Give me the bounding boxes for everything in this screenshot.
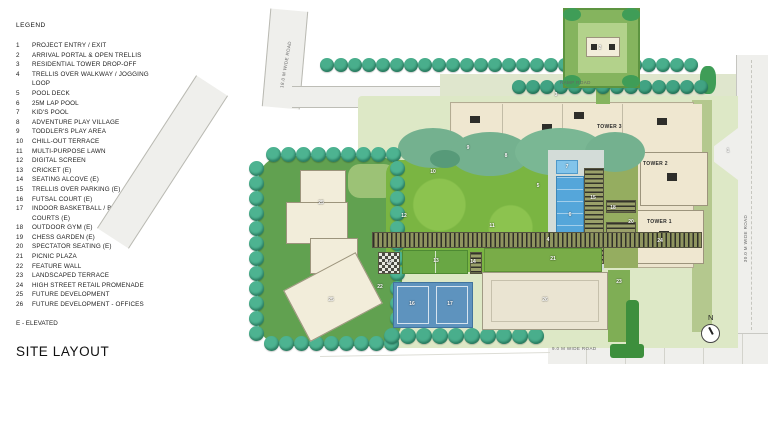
map-marker: 19	[386, 260, 392, 266]
tree-icon	[324, 336, 339, 351]
tree-icon	[249, 161, 264, 176]
map-marker: 6	[569, 212, 572, 218]
tree-icon	[249, 296, 264, 311]
tree-icon	[249, 326, 264, 341]
map-marker: 25	[328, 297, 334, 303]
map-marker: 15	[590, 195, 596, 201]
tree-icon	[249, 221, 264, 236]
tree-icon	[334, 58, 348, 72]
tree-icon	[326, 147, 341, 162]
north-label: N	[708, 313, 713, 322]
tree-icon	[369, 336, 384, 351]
tree-icon	[339, 336, 354, 351]
tower-label: TOWER 1	[647, 219, 672, 225]
tree-icon	[446, 58, 460, 72]
picnic-plaza-lawn	[484, 248, 602, 272]
tree-icon	[264, 336, 279, 351]
sports-courts	[393, 282, 473, 328]
tree-icon	[362, 58, 376, 72]
map-marker: 1	[727, 148, 730, 154]
tree-icon	[390, 176, 405, 191]
map-marker: 2	[599, 45, 602, 51]
tree-icon	[249, 311, 264, 326]
tree-icon	[526, 80, 540, 94]
tree-icon	[460, 58, 474, 72]
map-marker: 21	[550, 256, 556, 262]
map-marker: 5	[537, 183, 540, 189]
tree-icon	[540, 80, 554, 94]
road-label: 9.0 M WIDE ROAD	[552, 346, 597, 351]
tree-icon	[390, 58, 404, 72]
tree-icon	[266, 147, 281, 162]
map-marker: 16	[409, 301, 415, 307]
tree-icon	[390, 191, 405, 206]
tree-icon	[390, 161, 405, 176]
road-top-left-diagonal	[97, 75, 228, 248]
tower-core	[470, 116, 480, 123]
tree-icon	[400, 328, 416, 344]
map-marker: 11	[489, 223, 494, 229]
map-marker: 20	[628, 219, 634, 225]
tree-icon	[354, 336, 369, 351]
map-marker: 14	[470, 259, 476, 265]
tree-icon	[502, 58, 516, 72]
tree-icon	[530, 58, 544, 72]
tree-icon	[680, 80, 694, 94]
map-marker: 10	[430, 169, 436, 175]
map-marker: 7	[566, 164, 569, 170]
tree-icon	[656, 58, 670, 72]
map-marker: 25	[318, 200, 324, 206]
tree-icon	[320, 58, 334, 72]
tower-core	[657, 118, 667, 125]
tree-icon	[516, 58, 530, 72]
tree-icon	[474, 58, 488, 72]
tower-label: TOWER 2	[643, 161, 668, 167]
road-bottom-edge-line	[320, 352, 550, 357]
map-marker: 26	[542, 297, 548, 303]
tree-icon	[348, 58, 362, 72]
tree-icon	[464, 328, 480, 344]
tower-label: TOWER 3	[597, 124, 622, 130]
tree-icon	[480, 328, 496, 344]
compass-needle	[708, 327, 713, 335]
tree-icon	[311, 147, 326, 162]
hedge-dark-green	[626, 300, 639, 350]
tree-icon	[652, 80, 666, 94]
tree-icon	[249, 266, 264, 281]
tree-icon	[294, 336, 309, 351]
pavilion-roof-core	[609, 44, 615, 50]
tree-icon	[528, 328, 544, 344]
tree-icon	[512, 80, 526, 94]
adventure-play-shrub	[430, 150, 460, 168]
pavilion-tree-icon	[622, 75, 640, 88]
tree-icon	[249, 281, 264, 296]
map-marker: 12	[401, 213, 407, 219]
map-marker: 3	[555, 92, 558, 98]
tower-core	[667, 173, 677, 181]
pavilion-roof-core	[591, 44, 597, 50]
map-marker: 8	[505, 153, 508, 159]
map-marker: 13	[433, 258, 439, 264]
map-marker: 17	[447, 301, 453, 307]
tree-icon	[249, 206, 264, 221]
tree-icon	[371, 147, 386, 162]
map-marker: 23	[616, 279, 622, 285]
pavilion-tree-icon	[563, 8, 581, 21]
tree-icon	[418, 58, 432, 72]
map-marker: 18	[610, 205, 616, 211]
tree-icon	[642, 58, 656, 72]
tree-icon	[638, 80, 652, 94]
map-marker: 22	[377, 284, 383, 290]
tree-icon	[384, 328, 400, 344]
tree-icon	[416, 328, 432, 344]
tree-icon	[249, 251, 264, 266]
site-layout-page: LEGEND 1PROJECT ENTRY / EXIT2ARRIVAL POR…	[0, 0, 768, 427]
tree-icon	[341, 147, 356, 162]
tree-icon	[249, 236, 264, 251]
tree-icon	[488, 58, 502, 72]
tree-icon	[448, 328, 464, 344]
tree-icon	[281, 147, 296, 162]
pavilion-tree-icon	[622, 8, 640, 21]
tree-icon	[404, 58, 418, 72]
map-marker: 4	[547, 237, 550, 243]
tree-icon	[512, 328, 528, 344]
tree-icon	[670, 58, 684, 72]
road-right	[736, 55, 768, 338]
tree-icon	[684, 58, 698, 72]
tree-icon	[694, 80, 708, 94]
tree-icon	[432, 328, 448, 344]
tree-icon	[432, 58, 446, 72]
road-label: 30.0 M WIDE ROAD	[743, 215, 748, 262]
tree-icon	[496, 328, 512, 344]
tree-icon	[296, 147, 311, 162]
tree-icon	[356, 147, 371, 162]
tree-icon	[279, 336, 294, 351]
road-label: RAMP ROAD	[560, 80, 591, 85]
tree-icon	[544, 58, 558, 72]
map-marker: 24	[657, 238, 663, 244]
map-marker: 9	[467, 145, 470, 151]
pavilion-structure	[586, 37, 620, 57]
tree-icon	[386, 147, 401, 162]
tower-core	[574, 112, 584, 119]
tree-icon	[666, 80, 680, 94]
tree-icon	[376, 58, 390, 72]
tree-icon	[249, 176, 264, 191]
north-compass-icon	[701, 324, 720, 343]
tree-icon	[249, 191, 264, 206]
site-map: N TOWER 3TOWER 2TOWER 118.0 M WIDE ROADR…	[0, 0, 768, 427]
road-right-centerline	[751, 60, 752, 330]
trellis-walkway	[372, 232, 702, 248]
